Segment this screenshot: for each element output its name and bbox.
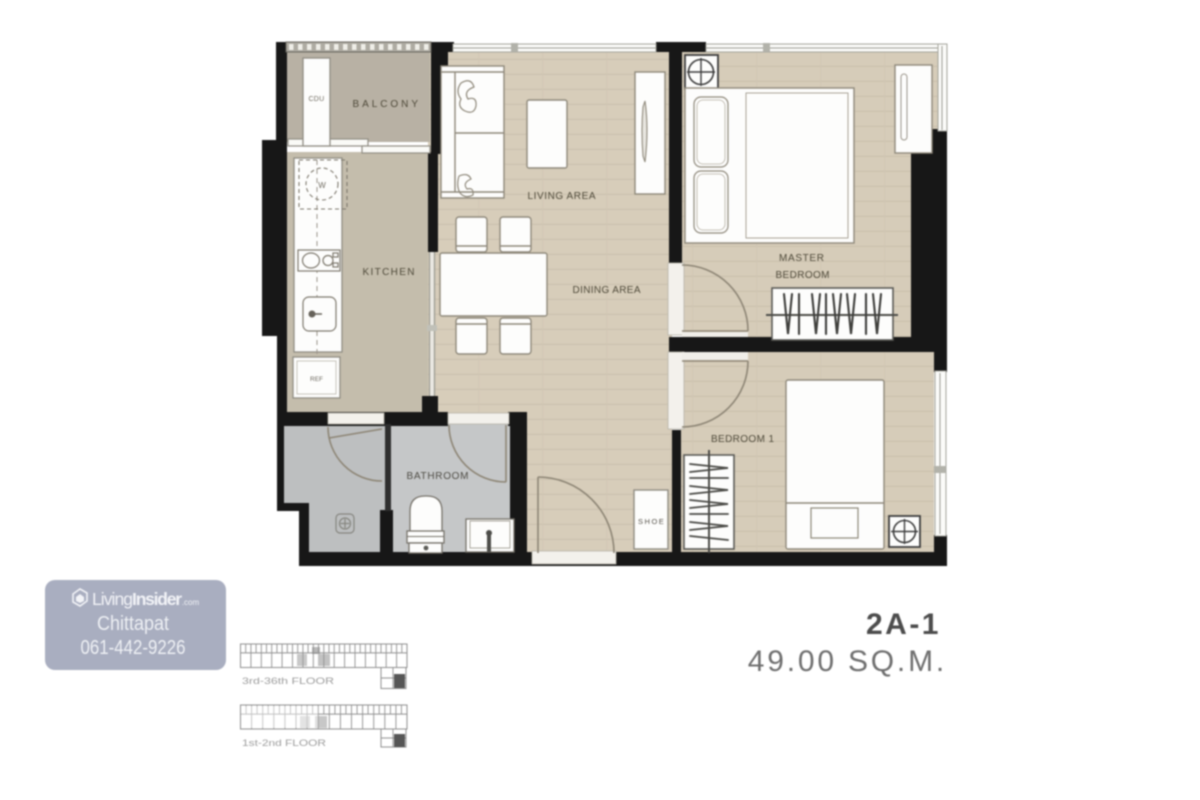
svg-text:1st-2nd FLOOR: 1st-2nd FLOOR xyxy=(242,738,327,748)
svg-text:49.00 SQ.M.: 49.00 SQ.M. xyxy=(748,645,947,678)
svg-text:W: W xyxy=(318,181,326,190)
svg-text:CDU: CDU xyxy=(308,96,324,103)
svg-text:KITCHEN: KITCHEN xyxy=(363,267,416,278)
svg-text:LIVING AREA: LIVING AREA xyxy=(528,191,597,202)
svg-text:2A-1: 2A-1 xyxy=(866,608,941,641)
svg-text:3rd-36th FLOOR: 3rd-36th FLOOR xyxy=(242,676,335,686)
svg-text:061-442-9226: 061-442-9226 xyxy=(81,636,186,659)
svg-text:REF: REF xyxy=(310,376,323,383)
svg-text:Chittapat: Chittapat xyxy=(97,612,169,635)
svg-text:BEDROOM 1: BEDROOM 1 xyxy=(711,434,775,445)
svg-text:MASTER: MASTER xyxy=(779,253,825,264)
svg-text:BEDROOM: BEDROOM xyxy=(776,270,831,281)
svg-text:BALCONY: BALCONY xyxy=(353,99,420,110)
svg-text:SHOE: SHOE xyxy=(638,517,664,526)
svg-text:DINING AREA: DINING AREA xyxy=(573,285,642,296)
svg-text:BATHROOM: BATHROOM xyxy=(407,471,470,482)
